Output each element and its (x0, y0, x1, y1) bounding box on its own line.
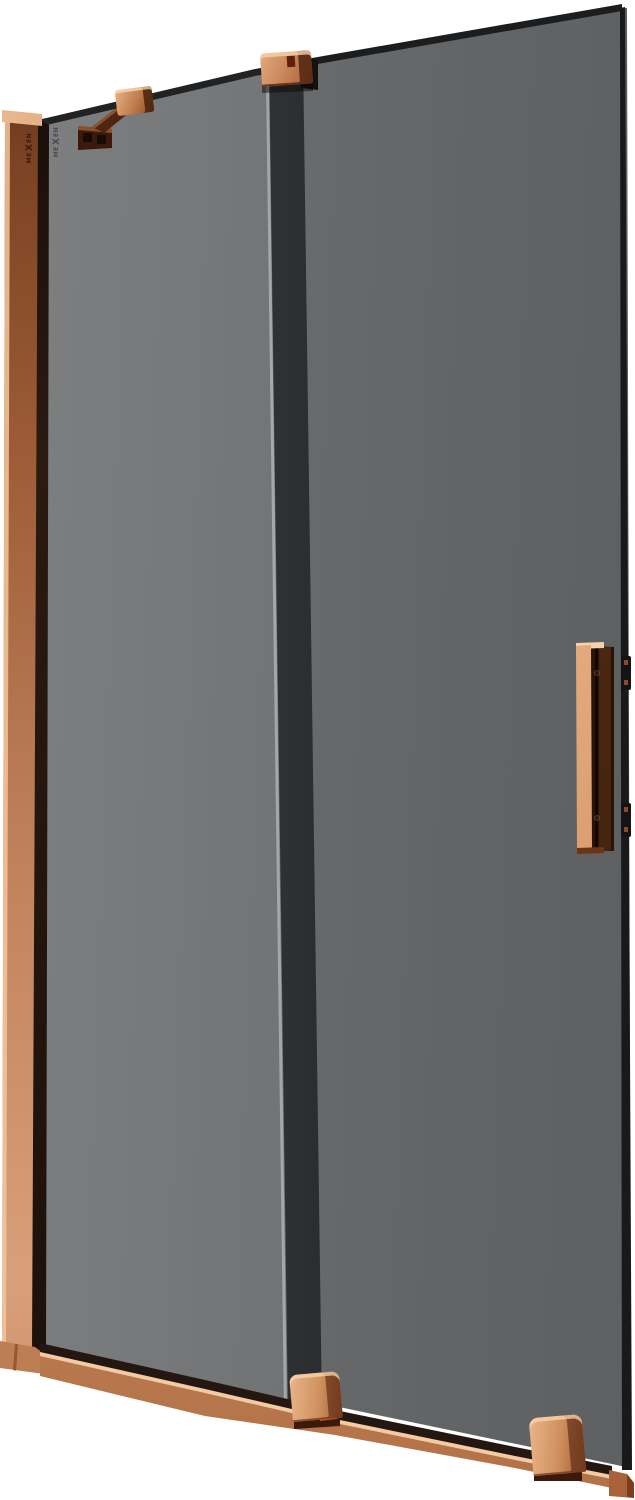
support-bracket-glass-clamp (115, 86, 155, 116)
stopper-screw-icon (624, 807, 628, 812)
roller-bracket-right (529, 1414, 587, 1476)
top-guide-clamp-seam (287, 56, 296, 68)
handle-screw-icon (595, 671, 599, 675)
stopper-screw-icon (624, 680, 628, 685)
support-bracket-hole (97, 135, 106, 144)
brand-logo-text: ME (27, 152, 33, 163)
stopper-screw-icon (624, 827, 628, 832)
brand-logo-text: ME (54, 146, 60, 157)
handle-screw-icon (595, 816, 599, 820)
brand-logo-on-profile: ME X EN (24, 130, 36, 166)
brand-logo-x: X (53, 138, 62, 145)
shower-screen-product-photo: ME X EN ME X EN (0, 0, 635, 1500)
door-stopper-clip (621, 656, 631, 690)
brand-logo-on-glass: ME X EN (51, 124, 63, 160)
brand-logo-text: EN (54, 127, 60, 137)
support-bracket-hole (83, 133, 92, 142)
roller-bracket-middle (289, 1371, 343, 1422)
door-stopper-clip (621, 803, 631, 837)
brand-logo-text: EN (27, 133, 33, 143)
brand-logo-x: X (26, 144, 35, 151)
stopper-screw-icon (624, 660, 628, 665)
